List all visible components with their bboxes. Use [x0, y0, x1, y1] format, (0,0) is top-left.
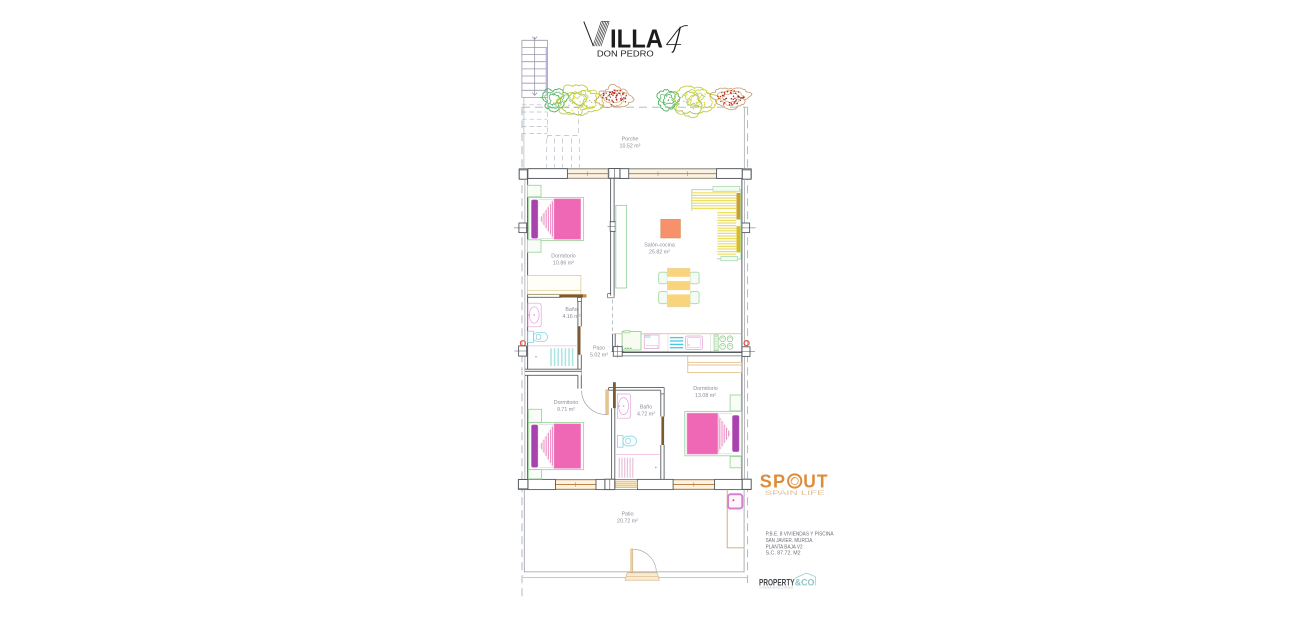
svg-text:20.72 m²: 20.72 m²: [617, 518, 638, 524]
svg-text:SP: SP: [760, 471, 786, 492]
svg-text:Baño: Baño: [640, 405, 652, 411]
svg-text:P.B.E. 8 VIVIENDAS Y PISCINA: P.B.E. 8 VIVIENDAS Y PISCINA: [766, 532, 834, 538]
svg-text:10.52 m²: 10.52 m²: [620, 143, 641, 149]
svg-text:Salón-cocina: Salón-cocina: [644, 243, 675, 249]
svg-text:4.16 m²: 4.16 m²: [563, 314, 581, 320]
svg-text:13.08 m²: 13.08 m²: [695, 393, 716, 399]
svg-text:SU INMOBILIARIA DE CONFIANZA: SU INMOBILIARIA DE CONFIANZA: [759, 586, 793, 590]
svg-text:Dormitorio: Dormitorio: [551, 254, 575, 260]
svg-text:DON PEDRO: DON PEDRO: [597, 50, 654, 59]
svg-text:Dormitorio: Dormitorio: [693, 386, 717, 392]
svg-text:9.71 m²: 9.71 m²: [557, 407, 575, 413]
svg-text:25.82 m²: 25.82 m²: [649, 249, 670, 255]
svg-text:S.C. 87.72. M2: S.C. 87.72. M2: [766, 551, 801, 557]
svg-text:5.02 m²: 5.02 m²: [590, 352, 608, 358]
svg-text:SPAIN LIFE: SPAIN LIFE: [765, 491, 825, 497]
svg-text:SAN JAVIER. MURCIA.: SAN JAVIER. MURCIA.: [766, 538, 814, 544]
svg-text:Porche: Porche: [622, 137, 639, 143]
svg-text:Paso: Paso: [593, 346, 605, 352]
svg-text:UT: UT: [803, 471, 828, 492]
svg-text:Baño: Baño: [565, 307, 577, 313]
svg-text:PLANTA BAJA V2: PLANTA BAJA V2: [766, 544, 803, 550]
svg-text:&CO: &CO: [795, 577, 815, 587]
svg-text:Patio: Patio: [621, 512, 633, 518]
svg-text:Dormitorio: Dormitorio: [554, 400, 578, 406]
svg-text:10.86 m²: 10.86 m²: [553, 260, 574, 266]
svg-text:4.72 m²: 4.72 m²: [637, 411, 655, 417]
